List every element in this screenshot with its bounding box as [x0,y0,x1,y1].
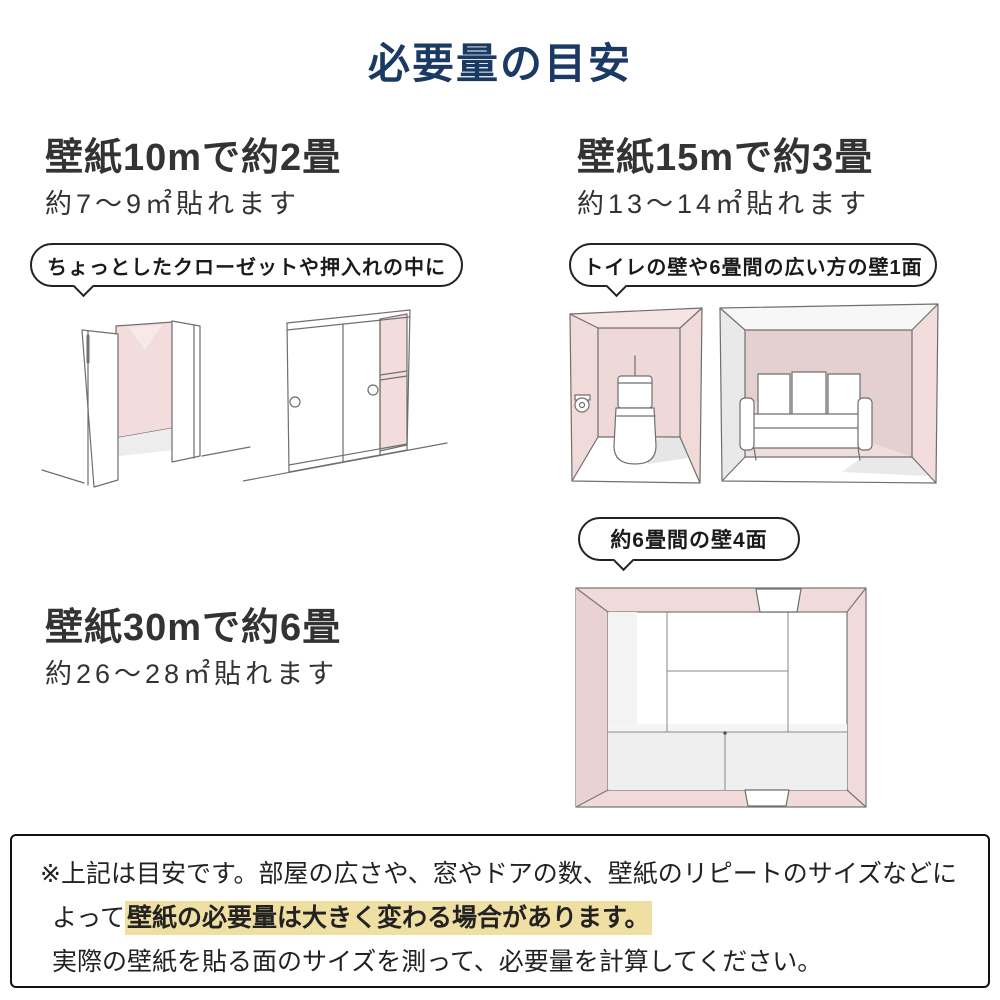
closet-doors-illustration [40,300,252,492]
bubble-toilet-usage: トイレの壁や6畳間の広い方の壁1面 [569,243,937,287]
section-15m-heading: 壁紙15mで約3畳 [577,126,873,181]
section-15m-subtext: 約13〜14㎡貼れます [577,182,870,221]
section-10m-subtext: 約7〜9㎡貼れます [45,182,300,221]
page-title: 必要量の目安 [0,30,1000,91]
bubble-tatami-room-usage-label: 約6畳間の壁4面 [610,524,767,554]
bubble-closet-usage: ちょっとしたクローゼットや押入れの中に [30,243,463,287]
section-30m-subtext: 約26〜28㎡貼れます [45,652,338,691]
note-line-2-prefix: よって [52,904,125,932]
bubble-toilet-usage-label: トイレの壁や6畳間の広い方の壁1面 [583,251,922,280]
sliding-closet-illustration [243,293,449,491]
section-10m-heading: 壁紙10mで約2畳 [45,126,341,181]
sofa-room-illustration [712,300,944,488]
note-line-2: よって壁紙の必要量は大きく変わる場合があります。 [40,896,978,940]
tatami-room-illustration [573,583,869,811]
disclaimer-note-box: ※上記は目安です。部屋の広さや、窓やドアの数、壁紙のリピートのサイズなどに よっ… [10,834,990,988]
note-line-3: 実際の壁紙を貼る面のサイズを測って、必要量を計算してください。 [40,940,978,984]
section-30m-heading: 壁紙30mで約6畳 [45,596,341,651]
bubble-tatami-room-usage: 約6畳間の壁4面 [578,517,800,561]
toilet-room-illustration [560,300,708,490]
bubble-closet-usage-label: ちょっとしたクローゼットや押入れの中に [47,251,446,280]
note-line-2-highlight: 壁紙の必要量は大きく変わる場合があります。 [125,901,652,935]
wallpaper-quantity-guide: 必要量の目安 壁紙10mで約2畳 約7〜9㎡貼れます ちょっとしたクローゼットや… [0,0,1000,1000]
note-line-1: ※上記は目安です。部屋の広さや、窓やドアの数、壁紙のリピートのサイズなどに [40,852,978,896]
